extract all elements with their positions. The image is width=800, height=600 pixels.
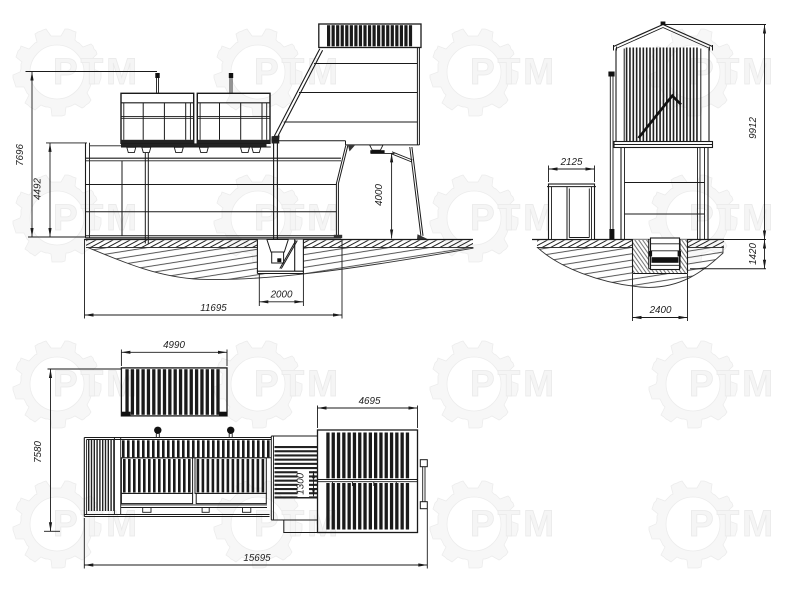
svg-text:9912: 9912 [748,117,759,139]
svg-text:15695: 15695 [243,553,271,564]
svg-text:PTM: PTM [470,363,557,404]
svg-text:1300: 1300 [296,472,307,494]
svg-text:4695: 4695 [359,396,381,407]
svg-text:2400: 2400 [649,305,672,316]
svg-text:PTM: PTM [689,51,776,92]
svg-text:PTM: PTM [689,363,776,404]
svg-text:PTM: PTM [689,503,776,544]
svg-text:PTM: PTM [254,197,341,238]
svg-text:2000: 2000 [270,290,293,301]
svg-text:7580: 7580 [33,441,44,463]
svg-text:PTM: PTM [254,363,341,404]
svg-text:7696: 7696 [15,144,26,166]
svg-text:4000: 4000 [374,184,385,206]
svg-text:PTM: PTM [470,503,557,544]
svg-text:4990: 4990 [163,340,185,351]
svg-text:PTM: PTM [689,197,776,238]
svg-text:PTM: PTM [470,197,557,238]
svg-text:PTM: PTM [53,197,140,238]
svg-text:PTM: PTM [254,51,341,92]
svg-text:2125: 2125 [560,157,583,168]
svg-text:4492: 4492 [33,178,44,200]
svg-text:PTM: PTM [470,51,557,92]
svg-text:11695: 11695 [200,303,227,314]
svg-text:1420: 1420 [748,243,759,265]
